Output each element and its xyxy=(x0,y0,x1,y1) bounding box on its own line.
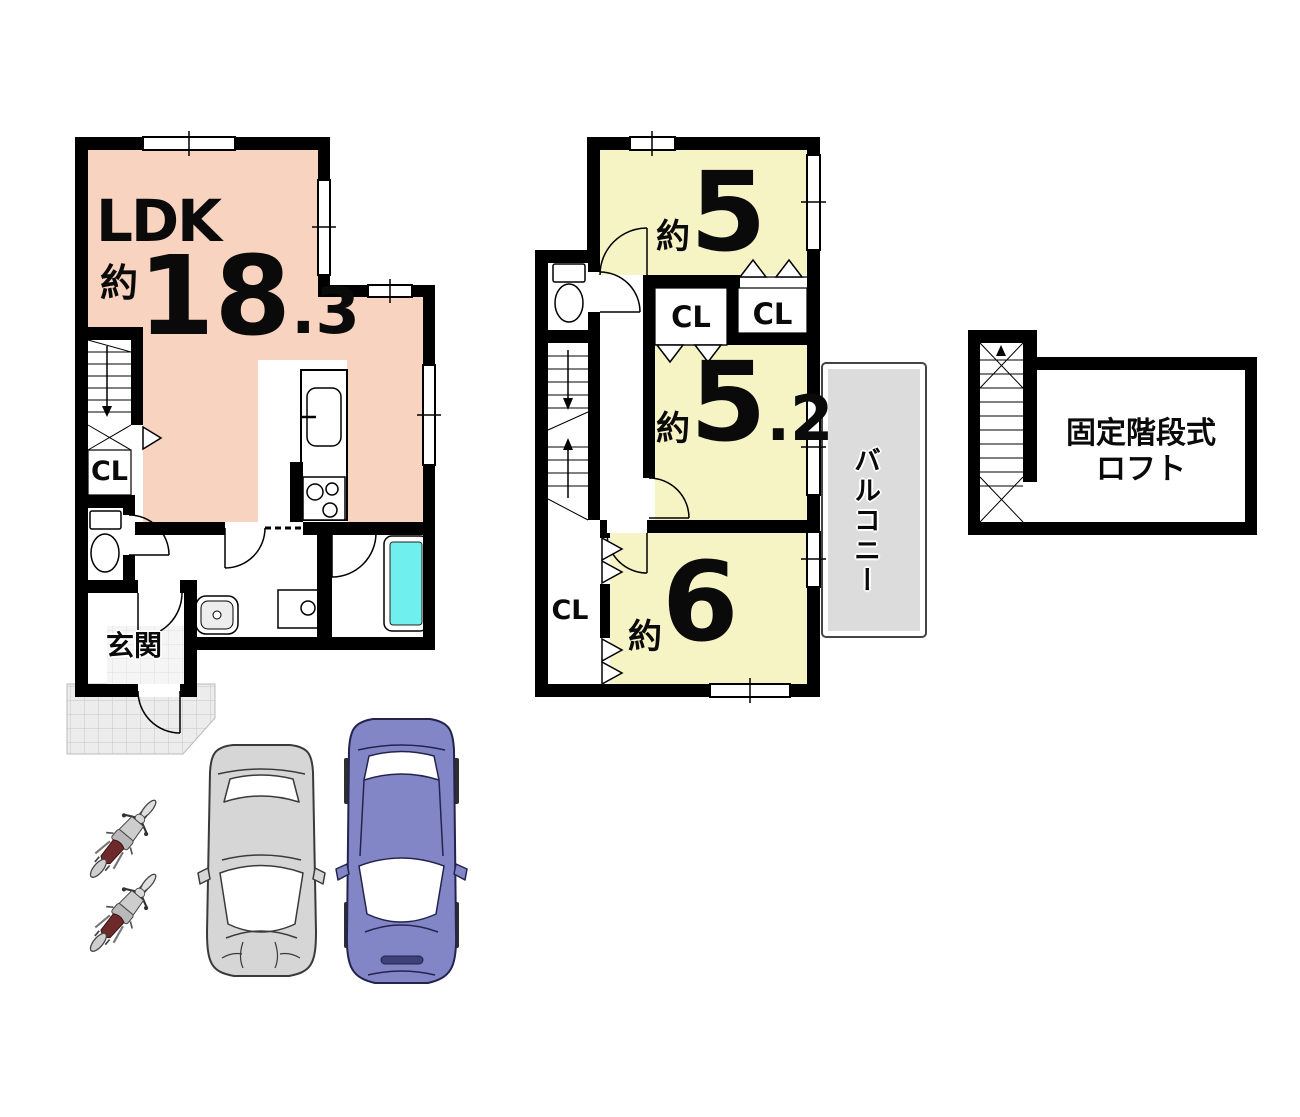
room-area-5: 約 5 xyxy=(656,166,767,260)
car-gray xyxy=(198,745,325,976)
windshield xyxy=(220,866,303,933)
closet-label-1f: CL xyxy=(88,458,131,485)
closet-label-2f-right: CL xyxy=(738,300,807,329)
room-area-5-2: 約 5 .2 xyxy=(656,356,833,450)
toilet2f-door-arc xyxy=(600,272,640,312)
loft-label: 固定階段式 ロフト xyxy=(1037,416,1245,488)
washbasin-icon xyxy=(196,596,238,634)
area-decimal: .3 xyxy=(291,280,360,344)
approx-label: 約 xyxy=(100,264,138,302)
approx-label: 約 xyxy=(656,220,690,254)
room-area-6: 約 6 xyxy=(628,556,739,654)
room-area-ldk: 約 18 .3 xyxy=(100,250,360,344)
loft-label-line2: ロフト xyxy=(1037,452,1245,488)
floorplan-canvas: LDK 約 18 .3 CL 玄関 約 5 CL CL 約 5 .2 約 6 C… xyxy=(0,0,1300,1117)
loft-label-line1: 固定階段式 xyxy=(1037,416,1245,452)
motorcycle-2 xyxy=(78,864,168,962)
stair-arrow-icon xyxy=(996,345,1006,356)
washroom-door-arc xyxy=(225,528,265,568)
balcony-label: バルコニー xyxy=(851,446,878,596)
bathtub-icon xyxy=(384,536,428,631)
approx-label: 約 xyxy=(656,412,690,446)
windshield xyxy=(359,858,444,922)
area-value: 5 xyxy=(690,166,767,260)
car-purple xyxy=(336,719,467,983)
closet-label-2f-bottom: CL xyxy=(542,597,598,624)
area-decimal: .2 xyxy=(767,388,834,450)
staircase-1f xyxy=(88,340,131,450)
toilet-icon-2f xyxy=(553,264,585,322)
toilet-icon-1f xyxy=(90,511,121,572)
kitchen-counter xyxy=(301,370,347,520)
approx-label: 約 xyxy=(628,620,662,654)
motorcycle-1 xyxy=(78,790,168,888)
area-value: 18 xyxy=(138,250,291,344)
entrance-label: 玄関 xyxy=(106,632,162,660)
area-value: 5 xyxy=(690,356,767,450)
staircase-2f xyxy=(548,350,588,520)
staircase-loft xyxy=(980,343,1023,522)
bathroom-door-arc xyxy=(332,533,376,577)
closet-label-2f-left: CL xyxy=(655,303,727,332)
washing-machine-icon xyxy=(278,590,318,628)
area-value: 6 xyxy=(662,556,739,650)
